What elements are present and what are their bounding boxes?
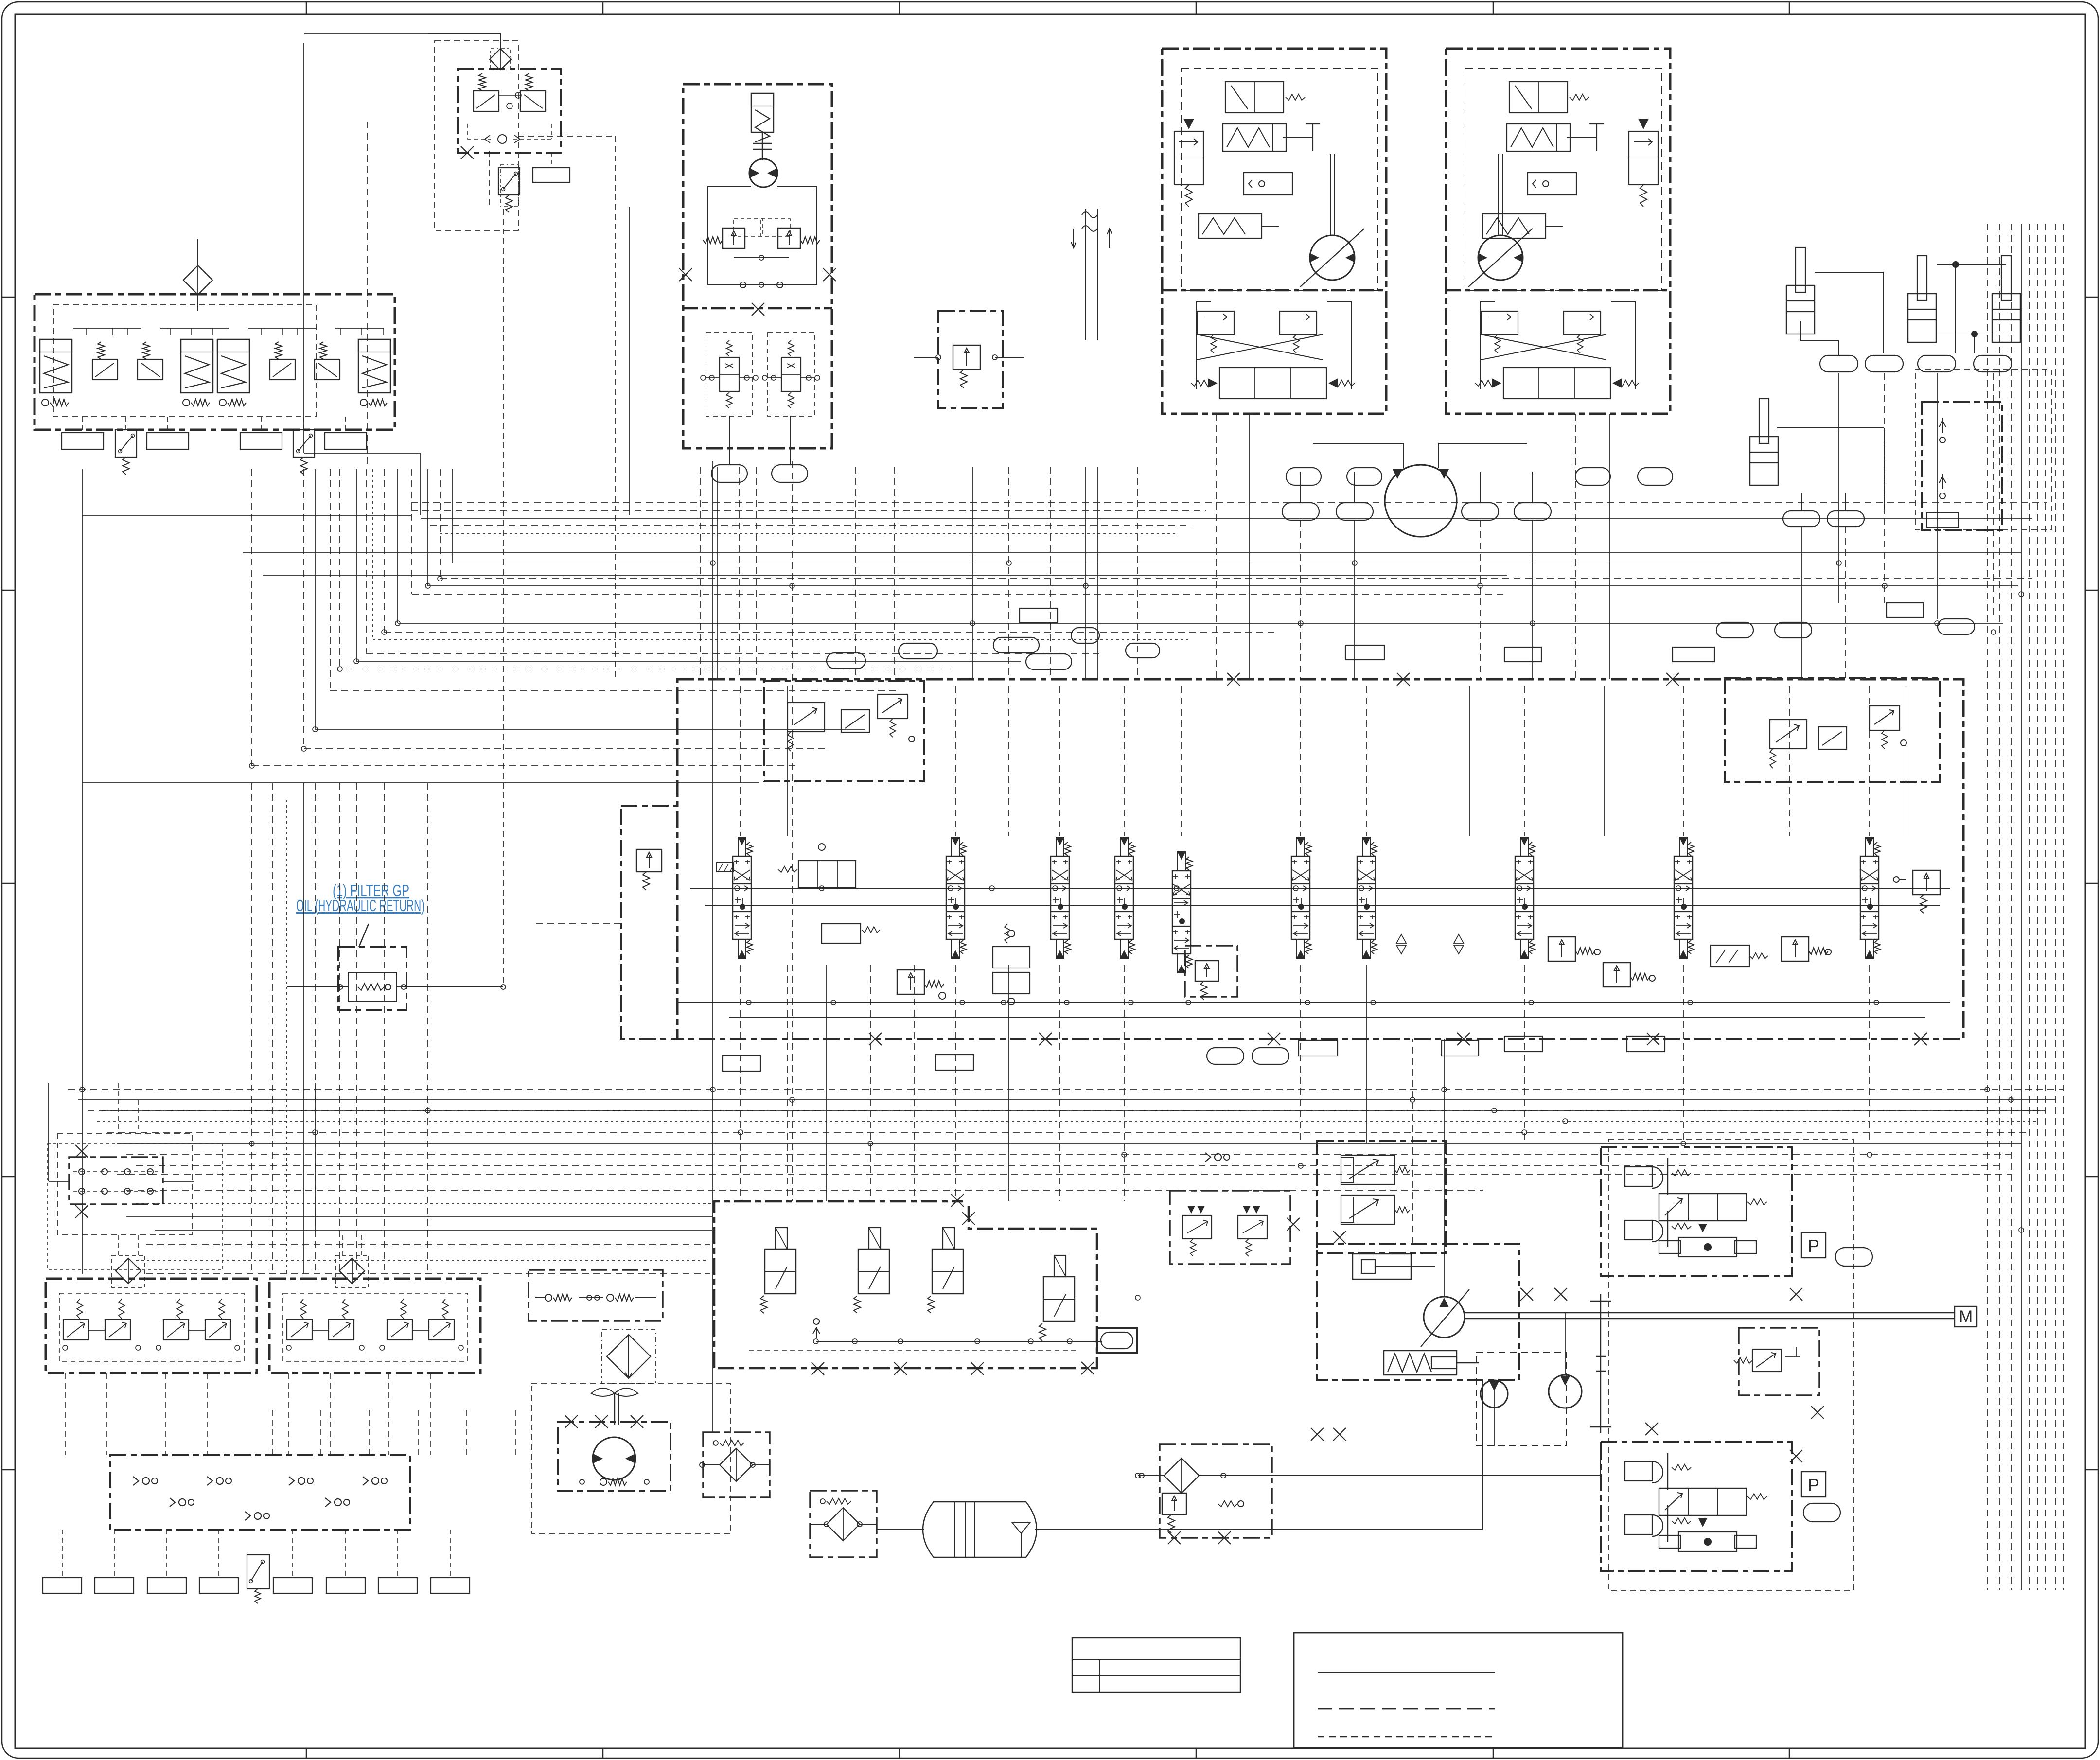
svg-text:M: M [1959,1307,1973,1326]
svg-text:P: P [1808,1475,1819,1495]
svg-text:P: P [1808,1236,1819,1256]
